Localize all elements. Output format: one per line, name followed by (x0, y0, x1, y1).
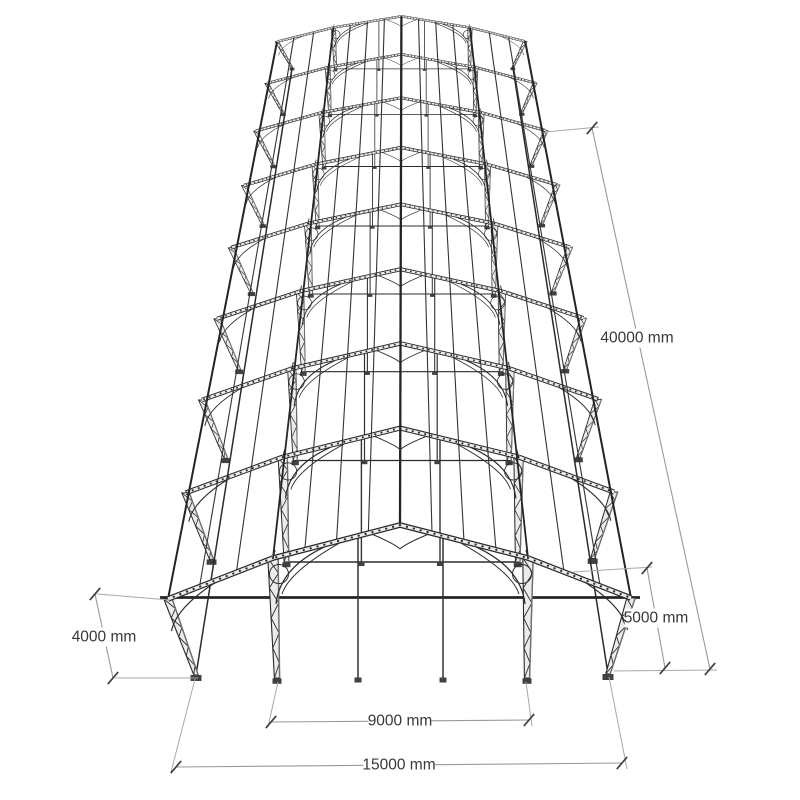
frame-structure-drawing: 40000 mm5000 mm4000 mm9000 mm15000 mm (0, 0, 800, 800)
dimension-label-eave-height: 4000 mm (72, 629, 137, 646)
dimension-label-inner-span: 9000 mm (368, 713, 433, 730)
dimension-label-overall-span: 15000 mm (362, 757, 435, 774)
dimension-label-building-length: 40000 mm (600, 330, 673, 347)
dimension-label-bay-spacing: 5000 mm (624, 610, 689, 627)
drawing-canvas: 40000 mm5000 mm4000 mm9000 mm15000 mm (0, 0, 800, 800)
